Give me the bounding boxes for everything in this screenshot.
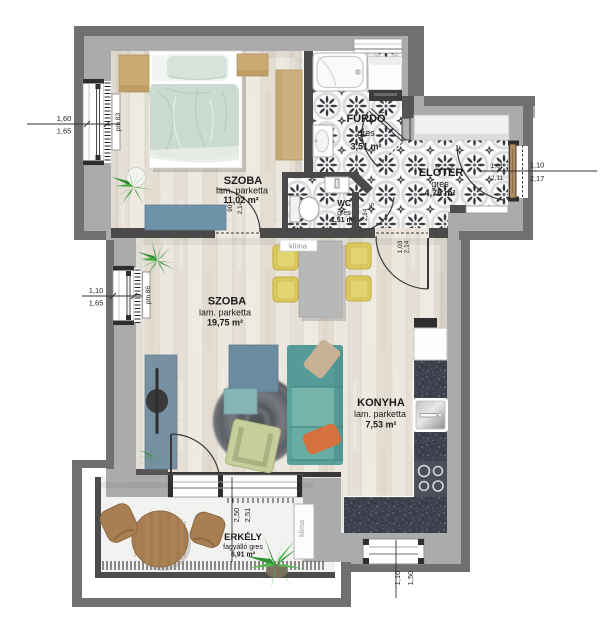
svg-text:klíma: klíma <box>299 520 306 537</box>
svg-text:2,50: 2,50 <box>232 508 241 523</box>
svg-text:1,65: 1,65 <box>89 299 104 308</box>
svg-text:2,17: 2,17 <box>530 174 545 183</box>
svg-text:ELŐTÉR: ELŐTÉR <box>419 166 464 179</box>
svg-text:lam. parketta: lam. parketta <box>199 308 251 318</box>
svg-text:1,50: 1,50 <box>406 571 415 586</box>
svg-text:1,10: 1,10 <box>393 571 402 586</box>
svg-text:lam. parketta: lam. parketta <box>216 186 268 196</box>
svg-text:ERKÉLY: ERKÉLY <box>224 532 262 543</box>
svg-text:KONYHA: KONYHA <box>357 397 405 409</box>
svg-text:FÜRDŐ: FÜRDŐ <box>346 112 386 125</box>
svg-text:11,02 m²: 11,02 m² <box>223 195 259 205</box>
svg-text:gres: gres <box>357 128 375 138</box>
svg-text:pm 86: pm 86 <box>145 286 152 304</box>
svg-text:pm 83: pm 83 <box>115 113 122 131</box>
svg-text:2,14: 2,14 <box>362 208 369 221</box>
svg-text:75: 75 <box>369 202 376 210</box>
svg-text:2,11: 2,11 <box>491 175 504 182</box>
svg-text:7,53 m²: 7,53 m² <box>365 420 396 430</box>
svg-text:1,65: 1,65 <box>57 127 72 136</box>
svg-text:6,91 m²: 6,91 m² <box>231 552 256 559</box>
svg-text:1,60: 1,60 <box>57 114 72 123</box>
svg-text:4,75 m²: 4,75 m² <box>424 188 455 198</box>
svg-text:2,51: 2,51 <box>243 508 252 523</box>
svg-text:klíma: klíma <box>289 242 308 251</box>
svg-text:1,10: 1,10 <box>89 286 104 295</box>
svg-text:3,51 m²: 3,51 m² <box>350 142 381 152</box>
svg-text:1,51 m²: 1,51 m² <box>331 217 356 224</box>
svg-text:WC: WC <box>337 199 351 208</box>
svg-text:1,01: 1,01 <box>491 163 504 170</box>
svg-text:lam. parketta: lam. parketta <box>354 409 406 419</box>
svg-text:2,14: 2,14 <box>404 240 411 253</box>
svg-text:fagyálló gres: fagyálló gres <box>223 544 263 551</box>
svg-text:SZOBA: SZOBA <box>208 296 247 308</box>
svg-text:gres: gres <box>337 210 351 217</box>
svg-text:1,10: 1,10 <box>530 161 545 170</box>
svg-text:19,75 m²: 19,75 m² <box>207 318 243 328</box>
